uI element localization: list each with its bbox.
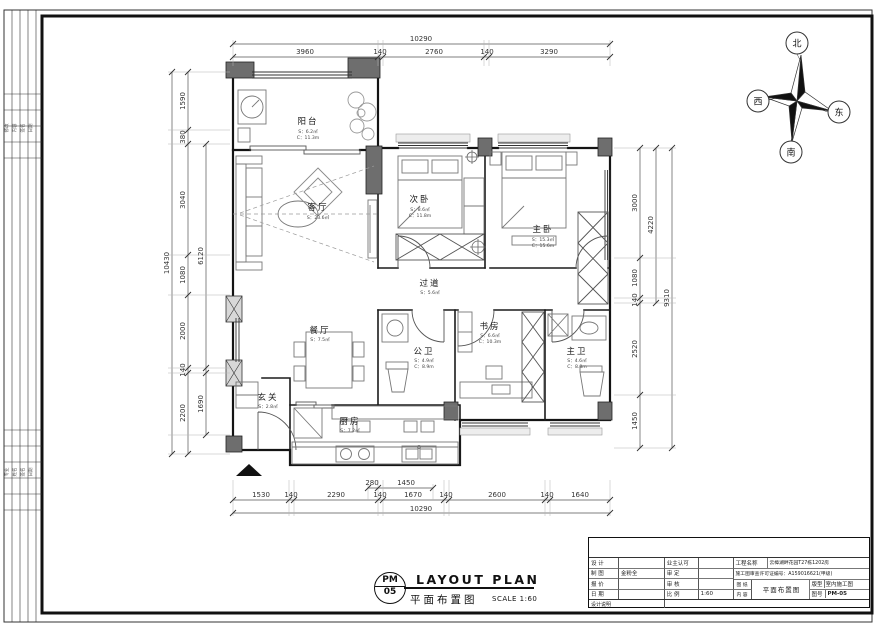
svg-text:C：10.3m: C：10.3m	[479, 339, 502, 345]
svg-text:380: 380	[179, 130, 187, 143]
room-balcony: 阳台	[297, 116, 318, 127]
svg-text:1530: 1530	[252, 491, 270, 499]
kitchen-counter	[292, 442, 458, 464]
svg-text:1080: 1080	[631, 269, 639, 287]
drawing-content: 平面布置图	[752, 580, 810, 600]
svg-text:修改: 修改	[3, 123, 10, 132]
svg-text:日期: 日期	[28, 123, 34, 132]
room-corridor: 过道	[419, 278, 440, 289]
svg-text:S：6.6㎡: S：6.6㎡	[480, 332, 500, 339]
svg-text:10430: 10430	[163, 252, 171, 274]
svg-text:3040: 3040	[179, 191, 187, 209]
room-labels: 阳台 S：6.2㎡ C：11.3m 客厅 S：23.6㎡ 次卧 S：8.6㎡ C…	[257, 116, 587, 434]
type-label: 版型	[811, 580, 824, 588]
sink	[402, 446, 436, 463]
quote-label: 报 价	[589, 579, 619, 590]
note-label: 设计说明	[589, 600, 665, 608]
svg-text:140: 140	[631, 293, 639, 306]
svg-text:S：4.6㎡: S：4.6㎡	[567, 357, 587, 364]
room-second-bedroom: 次卧	[409, 194, 430, 205]
svg-text:1690: 1690	[197, 395, 205, 413]
svg-text:S：5.6㎡: S：5.6㎡	[420, 289, 440, 296]
svg-text:C：15.6m: C：15.6m	[532, 243, 555, 249]
inner-walls	[262, 148, 610, 465]
compass-east-label: 东	[834, 107, 843, 119]
svg-text:内容: 内容	[11, 123, 18, 132]
bath-fixtures	[382, 314, 408, 392]
second-bedroom-door	[398, 236, 430, 268]
section-marker	[236, 464, 262, 476]
drawing-title-cn: 平面布置图	[410, 592, 478, 607]
room-master-bath: 主卫	[566, 346, 587, 357]
svg-text:10290: 10290	[410, 35, 432, 43]
svg-text:2520: 2520	[631, 340, 639, 358]
svg-text:10290: 10290	[410, 505, 432, 513]
check-label: 审 核	[665, 579, 699, 590]
room-study: 书房	[479, 321, 500, 332]
tv-cabinet	[368, 200, 377, 258]
drawing-sheet: 修改 内容 签名 日期 专业 姓名 签名 日期 北	[0, 0, 878, 632]
svg-text:140: 140	[439, 491, 452, 499]
balcony-slider	[250, 146, 306, 150]
svg-text:1080: 1080	[179, 266, 187, 284]
sheet-frame	[4, 10, 872, 622]
title-block: 设 计 制 图 报 价 日 期 金粉全 业主认可 审 定 审 核 比 例	[588, 537, 870, 608]
bed-master	[502, 152, 566, 228]
svg-text:140: 140	[373, 48, 386, 56]
nightstand-2	[566, 152, 577, 165]
drawing-title-bar: PM 05 LAYOUT PLAN 平面布置图 SCALE 1:60	[368, 566, 548, 610]
svg-text:S：6.2㎡: S：6.2㎡	[298, 128, 318, 135]
sheet-code-number: 05	[375, 587, 405, 597]
bath-door	[412, 310, 444, 342]
compass-north-label: 北	[792, 39, 801, 50]
svg-text:S：2.8㎡: S：2.8㎡	[258, 403, 278, 410]
svg-text:S：15.3㎡: S：15.3㎡	[532, 236, 555, 243]
drawing-title-en: LAYOUT PLAN	[416, 572, 539, 587]
svg-text:1640: 1640	[571, 491, 589, 499]
compass-rose: 北 西 东 南	[747, 32, 850, 163]
sheet-number-bubble: PM 05	[374, 572, 406, 604]
sheet-no-label: 图号	[811, 590, 825, 598]
svg-text:日期: 日期	[28, 467, 34, 476]
svg-text:2600: 2600	[488, 491, 506, 499]
svg-text:3960: 3960	[296, 48, 314, 56]
svg-text:C：8.8m: C：8.8m	[567, 364, 587, 370]
wardrobe-master-x	[578, 212, 608, 304]
master-bedroom-door	[576, 236, 608, 268]
svg-text:140: 140	[179, 363, 187, 376]
sofa	[236, 156, 262, 270]
title-underline	[404, 587, 534, 589]
svg-text:签名: 签名	[19, 468, 26, 477]
svg-text:S：4.9㎡: S：4.9㎡	[414, 357, 434, 364]
room-entry: 玄关	[257, 392, 278, 403]
svg-text:签名: 签名	[19, 124, 26, 133]
scale-label: 比 例	[665, 590, 699, 600]
svg-text:2000: 2000	[179, 322, 187, 340]
svg-text:6120: 6120	[197, 247, 205, 265]
project-value: 云樟湖畔花园T27栋1202房	[768, 558, 869, 568]
room-dining: 餐厅	[309, 326, 330, 336]
svg-text:C：11.3m: C：11.3m	[297, 135, 320, 141]
room-master-bedroom: 主卧	[532, 224, 553, 235]
svg-text:S：7.2㎡: S：7.2㎡	[340, 427, 360, 434]
svg-text:姓名: 姓名	[11, 468, 18, 477]
study-closet-x	[522, 312, 544, 402]
license-number: 施工图审查许可证编号：A159016621(甲级)	[734, 569, 869, 579]
svg-text:140: 140	[284, 491, 297, 499]
plant	[348, 92, 376, 140]
svg-text:140: 140	[373, 491, 386, 499]
scale-value: 1:60	[699, 590, 735, 600]
compass-south-label: 南	[786, 147, 795, 159]
project-label: 工程名称	[734, 558, 768, 568]
sheet-strip-labels: 修改 内容 签名 日期 专业 姓名 签名 日期	[3, 123, 34, 476]
wardrobe-second	[464, 178, 484, 234]
stove	[336, 446, 374, 462]
svg-text:9310: 9310	[663, 289, 671, 307]
windows	[236, 72, 610, 426]
svg-text:1670: 1670	[404, 491, 422, 499]
kitchen-slider	[296, 402, 316, 405]
dimension-extensions	[168, 40, 676, 516]
svg-text:3290: 3290	[540, 48, 558, 56]
svg-text:2760: 2760	[425, 48, 443, 56]
owner-label: 业主认可	[665, 558, 699, 569]
date-label: 日 期	[589, 590, 619, 600]
columns	[226, 58, 612, 452]
draft-label: 制 图	[589, 569, 619, 580]
svg-text:1450: 1450	[397, 479, 415, 487]
room-living: 客厅	[307, 202, 328, 213]
design-label: 设 计	[589, 558, 619, 569]
svg-text:3000: 3000	[631, 194, 639, 212]
svg-text:140: 140	[540, 491, 553, 499]
approve-label: 审 定	[665, 569, 699, 580]
sheet-code-prefix: PM	[375, 573, 405, 587]
svg-text:2290: 2290	[327, 491, 345, 499]
svg-text:S：7.5㎡: S：7.5㎡	[310, 336, 330, 343]
type-value: 室内施工图	[826, 580, 854, 588]
room-bath: 公卫	[413, 347, 434, 357]
drawing-scale: SCALE 1:60	[492, 595, 537, 603]
svg-text:1450: 1450	[631, 412, 639, 430]
washing-machine	[238, 90, 266, 142]
sheet-no-value: PM-05	[828, 591, 847, 597]
company-name	[589, 538, 869, 558]
svg-text:C：8.9m: C：8.9m	[414, 364, 434, 370]
svg-text:2200: 2200	[179, 404, 187, 422]
svg-text:1590: 1590	[179, 92, 187, 110]
compass-west-label: 西	[753, 97, 762, 108]
svg-text:S：8.6㎡: S：8.6㎡	[410, 206, 430, 213]
draft-value: 金粉全	[619, 569, 665, 580]
svg-text:140: 140	[480, 48, 493, 56]
svg-text:C：11.8m: C：11.8m	[409, 213, 432, 219]
svg-text:4220: 4220	[647, 216, 655, 234]
svg-text:S：23.6㎡: S：23.6㎡	[307, 214, 330, 221]
svg-text:280: 280	[365, 479, 378, 487]
svg-text:专业: 专业	[3, 467, 10, 476]
room-kitchen: 厨房	[339, 416, 360, 427]
